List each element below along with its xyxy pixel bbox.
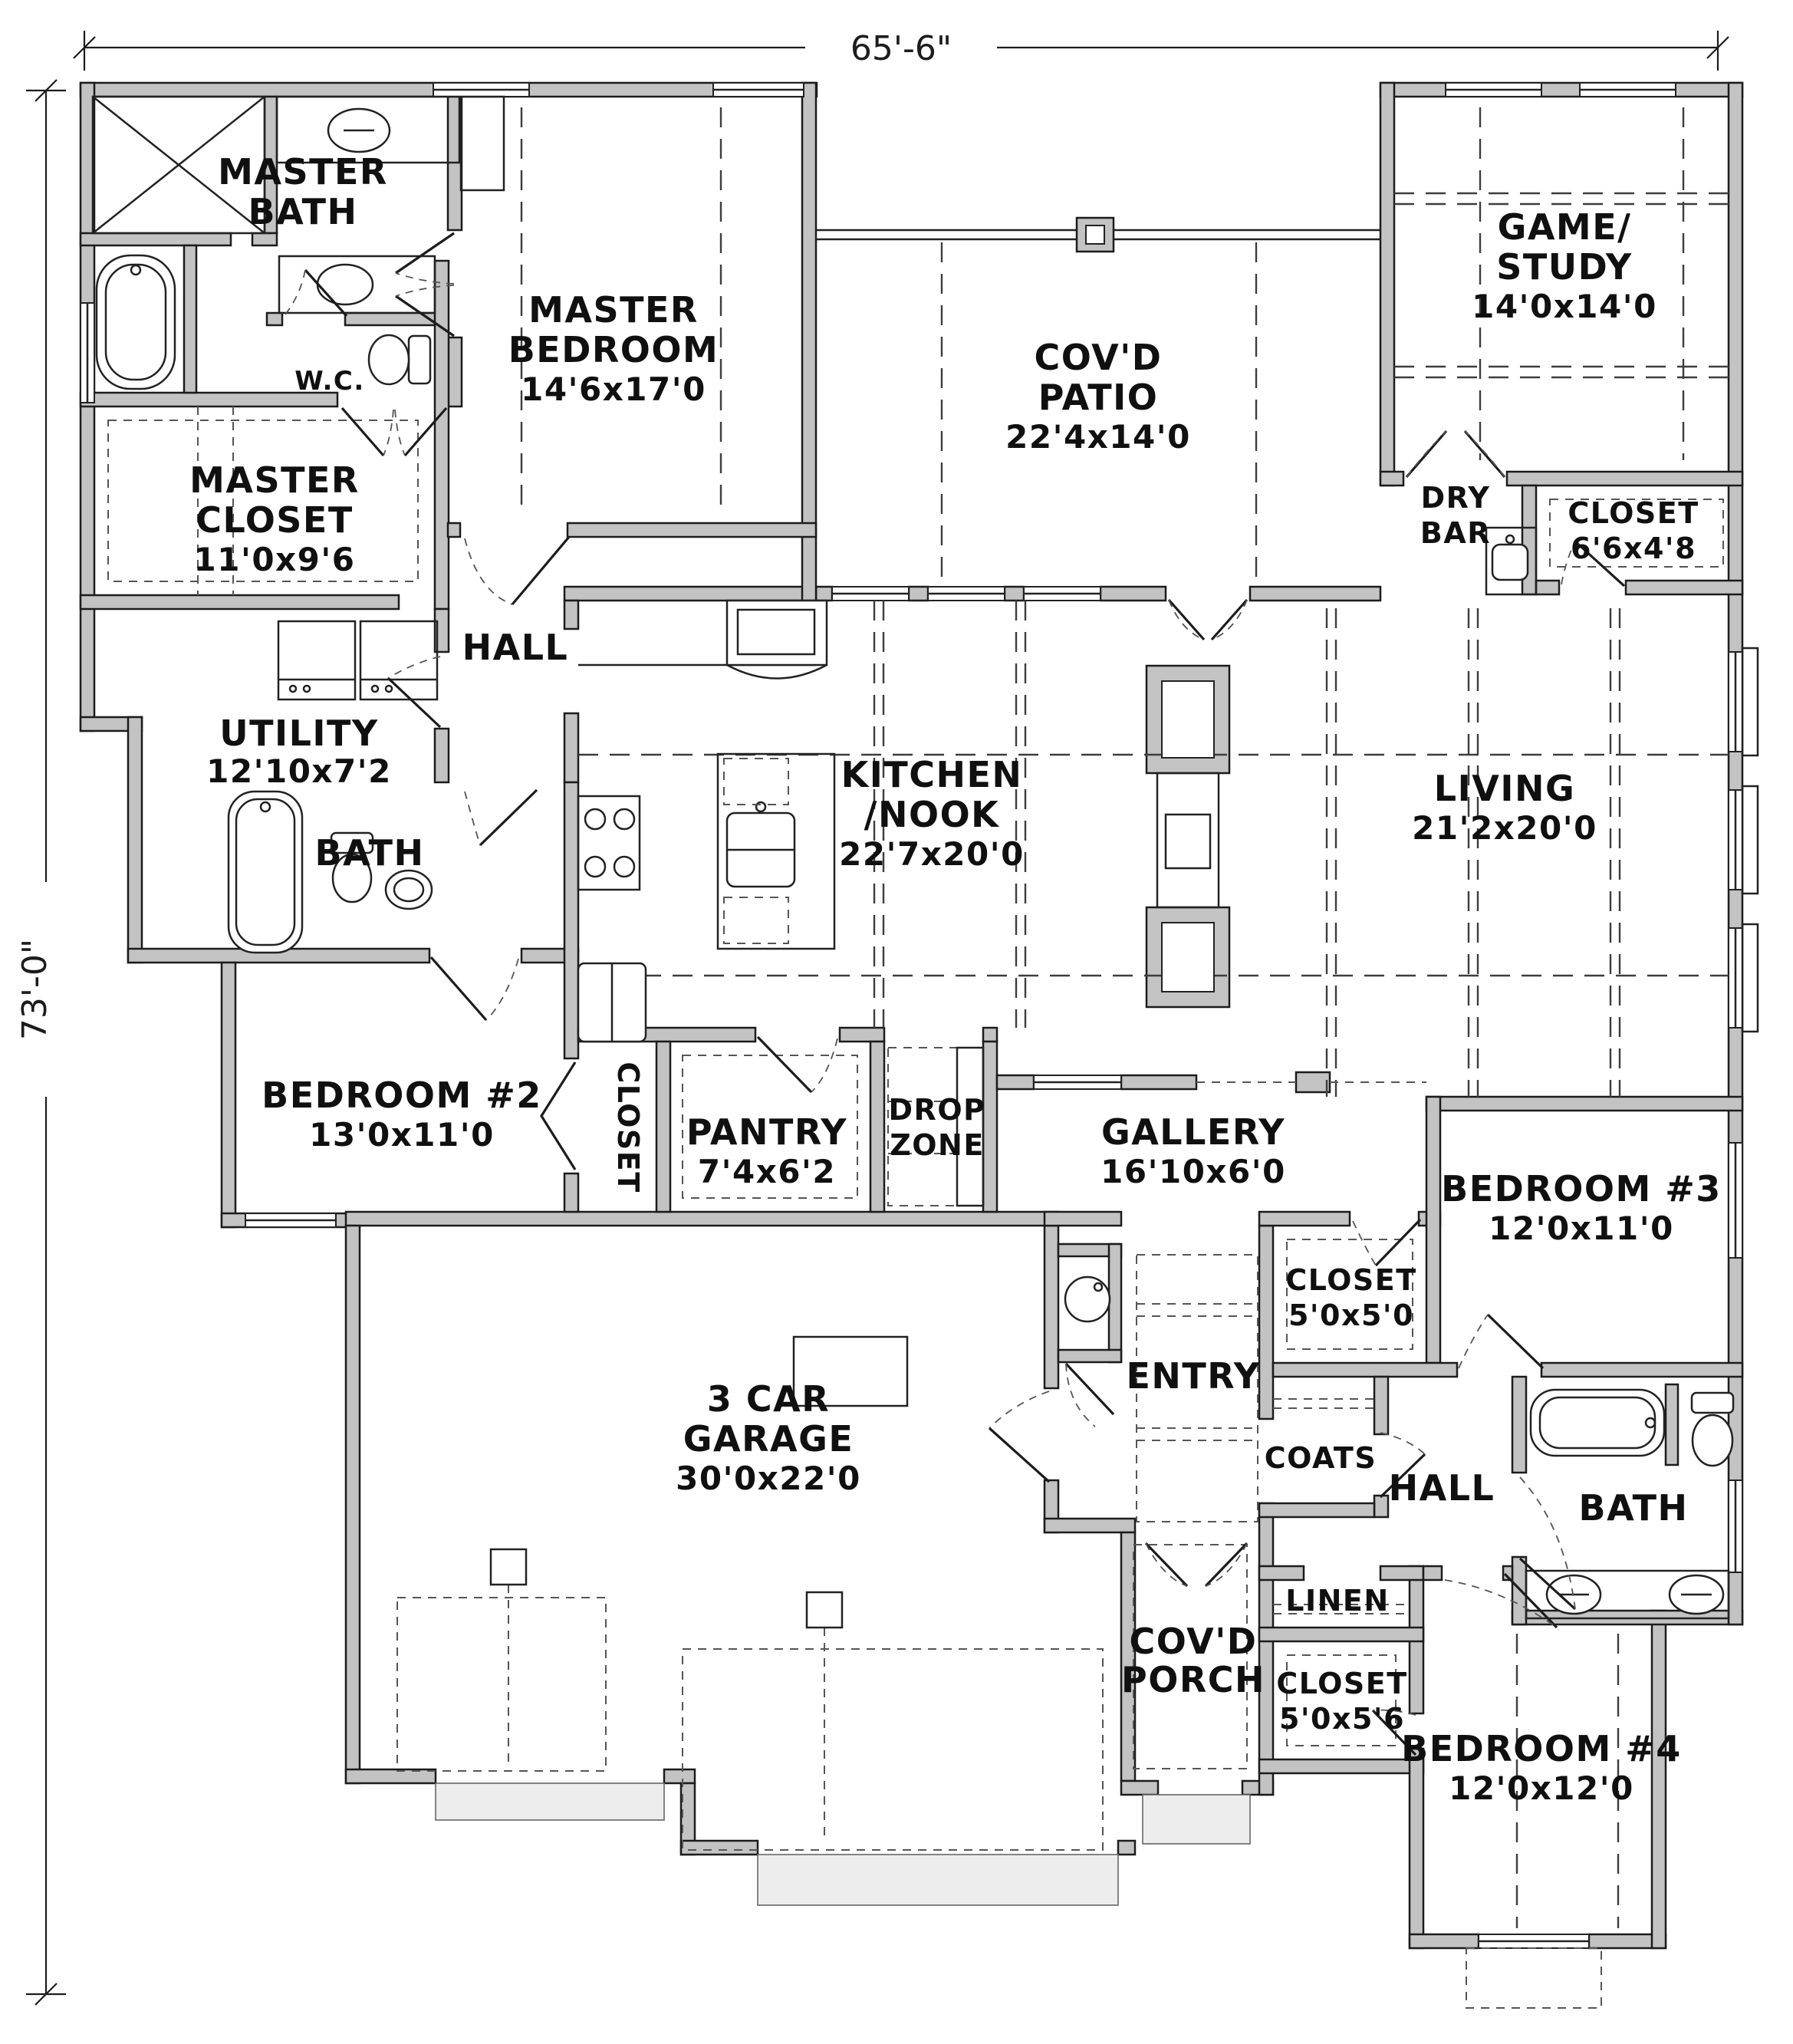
label-master-bedroom-2: BEDROOM	[508, 329, 719, 370]
label-game-closet: CLOSET	[1568, 496, 1699, 530]
label-kitchen: KITCHEN	[841, 754, 1023, 795]
doors-layer	[285, 233, 1624, 1755]
label-master-bath: MASTER	[218, 151, 388, 193]
cooktop	[578, 796, 640, 890]
label-porch: COV'D	[1130, 1621, 1258, 1662]
washer	[278, 621, 355, 699]
garage-bay-left	[397, 1598, 606, 1771]
label-bedroom2-closet: CLOSET	[611, 1061, 645, 1193]
window	[81, 303, 94, 403]
label-coats: COATS	[1265, 1441, 1377, 1475]
door-mud-nook	[1066, 1364, 1114, 1427]
label-bedroom2: BEDROOM #2	[262, 1075, 542, 1116]
window	[1729, 924, 1758, 1032]
label-hall-master: HALL	[462, 627, 569, 668]
toilet-right-bath	[1692, 1393, 1733, 1466]
garage-apron-left	[436, 1783, 664, 1820]
walls-layer	[81, 83, 1742, 1948]
label-master-closet: MASTER	[189, 459, 360, 501]
window	[433, 83, 529, 97]
floor-plan-sheet: 65'-6" 73'-0"	[0, 0, 1793, 2044]
label-porch-2: PORCH	[1121, 1659, 1265, 1700]
window	[1580, 83, 1676, 97]
label-entry: ENTRY	[1126, 1355, 1260, 1397]
window	[1729, 648, 1758, 755]
label-bedroom3-closet-dim: 5'0x5'0	[1288, 1298, 1414, 1332]
refrigerator	[578, 963, 646, 1042]
label-garage: 3 CAR	[707, 1378, 830, 1420]
label-garage-2: GARAGE	[683, 1418, 854, 1460]
garage-apron-right	[758, 1855, 1118, 1905]
labels-layer: MASTER BATH W.C. MASTER BEDROOM 14'6x17'…	[189, 151, 1722, 1807]
label-linen: LINEN	[1285, 1584, 1389, 1618]
door-garage-entry	[989, 1391, 1049, 1482]
label-master-bedroom: MASTER	[528, 289, 699, 331]
master-tub	[97, 255, 175, 389]
opener-left	[491, 1549, 526, 1585]
drop-zone-cubbies	[888, 1048, 957, 1206]
door-patio-double	[1169, 600, 1247, 640]
label-living-dim: 21'2x20'0	[1412, 809, 1597, 847]
label-kitchen-dim: 22'7x20'0	[839, 835, 1025, 873]
label-bedroom4-closet-dim: 5'0x5'6	[1279, 1702, 1405, 1736]
window	[1729, 1143, 1742, 1258]
label-dry-bar-2: BAR	[1420, 516, 1491, 550]
window	[1024, 587, 1100, 601]
label-gallery-dim: 16'10x6'0	[1100, 1153, 1286, 1190]
total-width-dimension: 65'-6"	[850, 29, 952, 68]
door-master-bedroom	[465, 537, 569, 604]
label-living: LIVING	[1434, 768, 1575, 809]
tub-left-bath	[229, 792, 302, 953]
label-patio: COV'D	[1035, 337, 1163, 378]
label-pantry: PANTRY	[686, 1111, 847, 1153]
door-game-french	[1406, 431, 1505, 477]
label-drop-zone: DROP	[889, 1093, 986, 1127]
label-bedroom4-closet: CLOSET	[1276, 1667, 1407, 1700]
fireplace-cabinet	[1162, 681, 1214, 758]
label-bath-right: BATH	[1579, 1487, 1689, 1529]
garage-bay-right	[683, 1649, 1103, 1850]
label-hall-bedrooms: HALL	[1389, 1467, 1495, 1509]
label-game-closet-dim: 6'6x4'8	[1571, 532, 1696, 565]
door-bedroom2-closet-bifold	[541, 1062, 575, 1170]
media-cabinet	[1162, 923, 1214, 992]
bedroom4-stoop	[1466, 1948, 1601, 2008]
window	[832, 587, 909, 601]
door-entry-double	[1146, 1543, 1247, 1586]
label-bedroom4: BEDROOM #4	[1401, 1728, 1682, 1769]
window	[1034, 1075, 1121, 1089]
label-bedroom3-closet: CLOSET	[1285, 1263, 1416, 1297]
kitchen-island	[718, 754, 834, 949]
label-utility: UTILITY	[219, 713, 378, 754]
window	[928, 587, 1005, 601]
window	[1479, 1934, 1589, 1948]
label-game-dim: 14'0x14'0	[1472, 288, 1657, 325]
label-wc: W.C.	[294, 366, 365, 397]
door-left-bath	[465, 790, 537, 845]
label-dry-bar: DRY	[1421, 481, 1491, 515]
door-pantry	[758, 1037, 837, 1092]
total-height-dimension: 73'-0"	[15, 939, 54, 1040]
toilet-master	[369, 335, 430, 384]
label-master-bedroom-dim: 14'6x17'0	[521, 370, 706, 408]
label-game-2: STUDY	[1496, 246, 1633, 288]
wc-vanity-sink	[279, 256, 435, 313]
mud-sink	[1065, 1277, 1110, 1322]
door-master-closet-double	[342, 408, 446, 456]
label-bedroom2-dim: 13'0x11'0	[309, 1116, 495, 1154]
label-patio-dim: 22'4x14'0	[1005, 418, 1191, 456]
tub-right-bath	[1531, 1390, 1664, 1456]
window	[245, 1213, 336, 1227]
windows-layer	[81, 83, 1758, 1948]
label-master-closet-dim: 11'0x9'6	[194, 541, 356, 578]
label-bedroom3: BEDROOM #3	[1441, 1168, 1722, 1210]
label-garage-dim: 30'0x22'0	[676, 1460, 861, 1497]
label-kitchen-2: /NOOK	[864, 794, 1001, 835]
label-game: GAME/	[1498, 206, 1632, 248]
window	[1729, 1480, 1742, 1572]
label-bedroom3-dim: 12'0x11'0	[1489, 1210, 1674, 1247]
label-bath-left: BATH	[315, 832, 425, 874]
sink-left-bath	[386, 871, 432, 909]
opener-right	[807, 1592, 842, 1628]
door-utility	[388, 657, 440, 727]
label-pantry-dim: 7'4x6'2	[698, 1153, 836, 1190]
door-bedroom2	[431, 957, 518, 1020]
kitchen-counter-sink	[578, 601, 827, 679]
door-closet-bedroom3	[1353, 1219, 1420, 1266]
window	[713, 83, 804, 97]
window	[1729, 786, 1758, 894]
door-bedroom3	[1459, 1315, 1543, 1368]
label-master-closet-2: CLOSET	[196, 499, 353, 541]
label-gallery: GALLERY	[1101, 1111, 1285, 1153]
label-patio-2: PATIO	[1038, 377, 1159, 418]
cabinet	[461, 97, 504, 190]
floor-plan-svg: 65'-6" 73'-0"	[0, 0, 1793, 2044]
porch-stoop	[1143, 1795, 1250, 1844]
window	[1446, 83, 1541, 97]
label-master-bath-2: BATH	[248, 191, 358, 232]
label-bedroom4-dim: 12'0x12'0	[1449, 1769, 1634, 1807]
label-drop-zone-2: ZONE	[890, 1128, 985, 1162]
label-utility-dim: 12'10x7'2	[206, 752, 392, 790]
